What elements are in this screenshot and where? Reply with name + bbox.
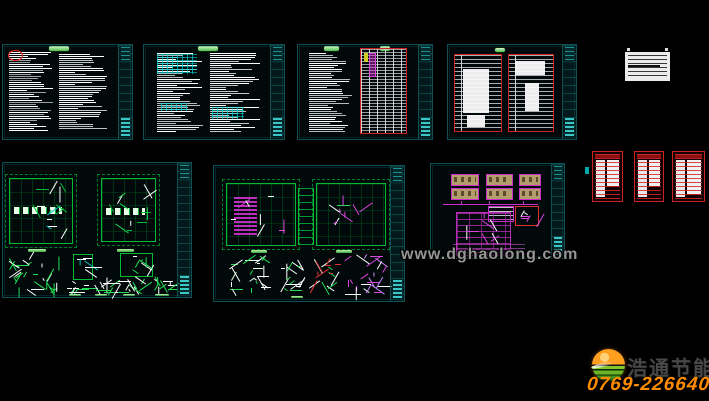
card-divider xyxy=(628,65,660,67)
magenta-pipe-drop xyxy=(461,201,462,205)
phone-number-text: 0769-22664029 xyxy=(586,374,709,396)
detail-title-label xyxy=(291,296,303,298)
sheet-system-7[interactable] xyxy=(430,163,565,259)
micro-detail xyxy=(115,280,146,294)
sheet-plans-6[interactable] xyxy=(213,165,405,302)
yellow-cell xyxy=(364,53,368,62)
cad-canvas[interactable]: www.dghaolong.com 浩通节能 0769-22664029 xyxy=(0,0,709,401)
detail-title-label xyxy=(95,294,107,296)
detail-lines xyxy=(518,209,536,223)
floor-plan-left xyxy=(9,178,73,244)
green-title-tag xyxy=(49,46,69,51)
green-title-tag xyxy=(324,46,339,51)
text-column-right xyxy=(59,54,109,132)
floor-plan-right xyxy=(101,178,156,242)
green-title-tag xyxy=(495,48,505,52)
heat-pump-unit-block xyxy=(519,188,541,200)
mini-sheet-block xyxy=(607,160,619,186)
red-cloud-markup-icon xyxy=(8,50,23,61)
piping-isometric xyxy=(344,255,390,299)
cyan-table-block xyxy=(157,54,197,74)
table-white-area xyxy=(463,69,489,113)
red-mini-sheet-1[interactable] xyxy=(592,151,623,202)
sheet-notes-2[interactable] xyxy=(143,44,285,140)
plan-title-label xyxy=(336,250,352,253)
text-column-left xyxy=(309,53,352,135)
title-block-strip xyxy=(118,45,132,139)
heat-pump-unit-block xyxy=(486,188,513,200)
micro-detail xyxy=(91,281,113,294)
mini-sheet-column xyxy=(676,160,685,197)
riser-shaft-grid xyxy=(298,188,314,245)
sheet-notes-schedule-3[interactable] xyxy=(297,44,433,140)
material-list-card[interactable] xyxy=(625,52,670,81)
magenta-pipe-drop xyxy=(489,201,490,205)
corner-tick-icon xyxy=(627,48,630,51)
text-column-right xyxy=(210,53,262,135)
magenta-cell xyxy=(369,53,376,77)
corner-tick-icon xyxy=(665,48,668,51)
red-mini-sheet-3[interactable] xyxy=(672,151,705,202)
piping-isometric xyxy=(274,260,304,298)
floor-plan-left xyxy=(226,183,296,246)
green-title-tag xyxy=(198,46,218,51)
mini-sheet-header xyxy=(675,154,702,158)
table-white-area xyxy=(515,61,545,75)
detail-box xyxy=(73,254,93,280)
mini-sheet-block xyxy=(649,160,660,186)
magenta-pipe-drop xyxy=(523,201,524,205)
heat-pump-unit-block xyxy=(451,174,479,186)
title-block-strip xyxy=(418,45,432,139)
detail-title-label xyxy=(123,294,135,296)
mini-sheet-header xyxy=(637,154,661,158)
sheet-plans-5[interactable] xyxy=(2,162,192,298)
plan-title-label xyxy=(117,249,134,252)
mini-sheet-block xyxy=(687,160,701,194)
floor-plan-right xyxy=(316,183,386,246)
title-block-strip xyxy=(551,164,564,258)
plan-detail-lines xyxy=(106,183,151,237)
mini-sheet-header xyxy=(595,154,620,158)
sheet-schedules-4[interactable] xyxy=(447,44,577,140)
detail-lines xyxy=(123,256,150,274)
text-column-left xyxy=(9,52,53,134)
teal-tick-icon xyxy=(585,167,589,174)
detail-title-label xyxy=(69,294,81,296)
piping-isometric xyxy=(306,257,341,299)
watermark-text: www.dghaolong.com xyxy=(401,246,578,264)
detail-title-label xyxy=(155,294,169,296)
title-block-strip xyxy=(177,163,191,297)
haotong-logo: 浩通节能 0769-22664029 xyxy=(586,346,709,401)
red-schedule-table-left xyxy=(454,54,502,132)
red-schedule-table xyxy=(360,48,407,134)
piping-isometric xyxy=(4,255,66,297)
title-block-strip xyxy=(270,45,284,139)
cyan-table-block xyxy=(161,103,187,111)
detail-lines xyxy=(76,257,90,277)
red-detail-box xyxy=(515,206,539,226)
heat-pump-unit-block xyxy=(486,174,513,186)
plan-title-label xyxy=(28,249,46,252)
red-mini-sheet-2[interactable] xyxy=(634,151,664,202)
heat-pump-unit-block xyxy=(451,188,479,200)
table-white-area xyxy=(525,83,539,111)
plan-detail-lines xyxy=(327,199,364,233)
micro-detail xyxy=(65,281,89,294)
sheet-notes-1[interactable] xyxy=(2,44,133,140)
red-schedule-table-right xyxy=(508,54,554,132)
detail-box xyxy=(120,253,153,277)
title-block-strip xyxy=(390,166,404,301)
plan-detail-lines xyxy=(14,183,68,239)
mini-sheet-column xyxy=(596,160,605,197)
table-white-area xyxy=(467,115,485,127)
cyan-table-block xyxy=(212,107,244,119)
plan-detail-lines xyxy=(231,188,291,241)
piping-isometric xyxy=(224,257,271,297)
plan-title-label xyxy=(251,250,267,253)
heat-pump-unit-block xyxy=(519,174,541,186)
micro-detail xyxy=(151,280,175,294)
title-block-strip xyxy=(562,45,576,139)
mini-sheet-column xyxy=(638,160,647,197)
